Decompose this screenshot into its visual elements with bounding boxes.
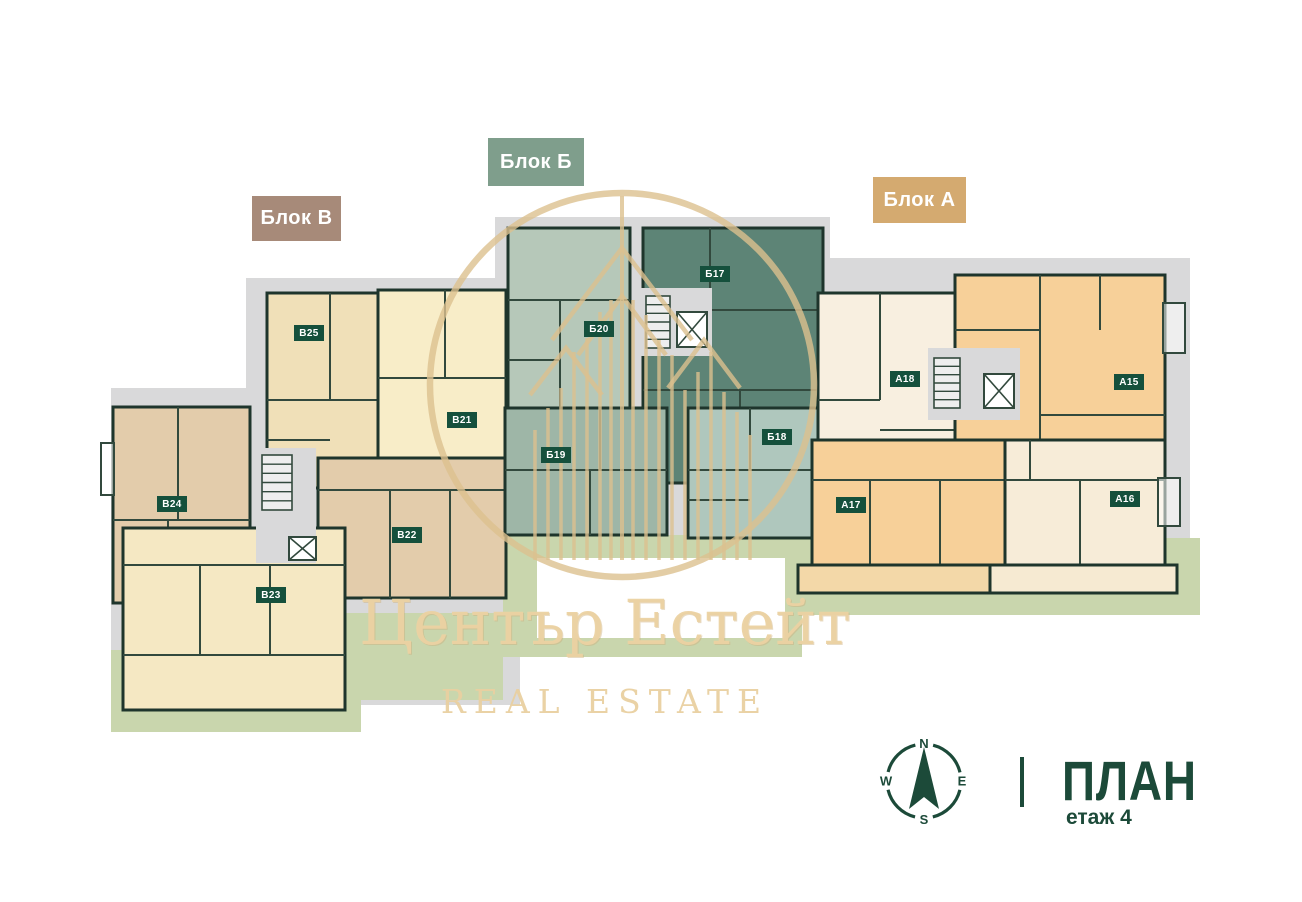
plan-floor-label: етаж 4 — [1066, 806, 1132, 830]
unit-badge-A17: А17 — [836, 497, 866, 513]
block-label-b: Блок Б — [488, 138, 584, 186]
unit-badge-B17: Б17 — [700, 266, 730, 282]
compass-s-label: S — [920, 812, 929, 827]
unit-badge-A16: А16 — [1110, 491, 1140, 507]
unit-badge-B18: Б18 — [762, 429, 792, 445]
block-label-a: Блок А — [873, 177, 966, 223]
unit-badge-B22: В22 — [392, 527, 422, 543]
unit-badge-B20: Б20 — [584, 321, 614, 337]
floorplan-page: В25В21В24В22В23Б20Б17Б19Б18А18А15А17А16 … — [0, 0, 1302, 902]
balcony — [1158, 478, 1180, 526]
compass-e-label: E — [958, 774, 967, 789]
unit-badge-B24: В24 — [157, 496, 187, 512]
apartment-unit-A16 — [1005, 440, 1165, 565]
unit-outline — [688, 408, 820, 538]
compass-rose-icon: NESW — [860, 717, 988, 845]
terrace — [990, 565, 1177, 593]
compass-w-label: W — [880, 774, 893, 789]
unit-badge-B21: В21 — [447, 412, 477, 428]
compass-n-label: N — [919, 736, 928, 751]
balcony — [1163, 303, 1185, 353]
stairwell — [256, 448, 316, 563]
unit-badge-A18: А18 — [890, 371, 920, 387]
block-label-v: Блок В — [252, 196, 341, 241]
apartment-unit-B18 — [688, 408, 820, 538]
legend-divider — [1020, 757, 1024, 807]
unit-badge-B19: Б19 — [541, 447, 571, 463]
unit-badge-B25: В25 — [294, 325, 324, 341]
watermark-brand-name: Център Естейт — [300, 586, 910, 659]
plan-title: ПЛАН — [1062, 748, 1197, 813]
balcony — [101, 443, 114, 495]
compass-needle — [909, 747, 939, 809]
unit-badge-B23: В23 — [256, 587, 286, 603]
stairwell — [928, 348, 1020, 420]
unit-badge-A15: А15 — [1114, 374, 1144, 390]
watermark-brand-subtitle: REAL ESTATE — [300, 682, 910, 721]
